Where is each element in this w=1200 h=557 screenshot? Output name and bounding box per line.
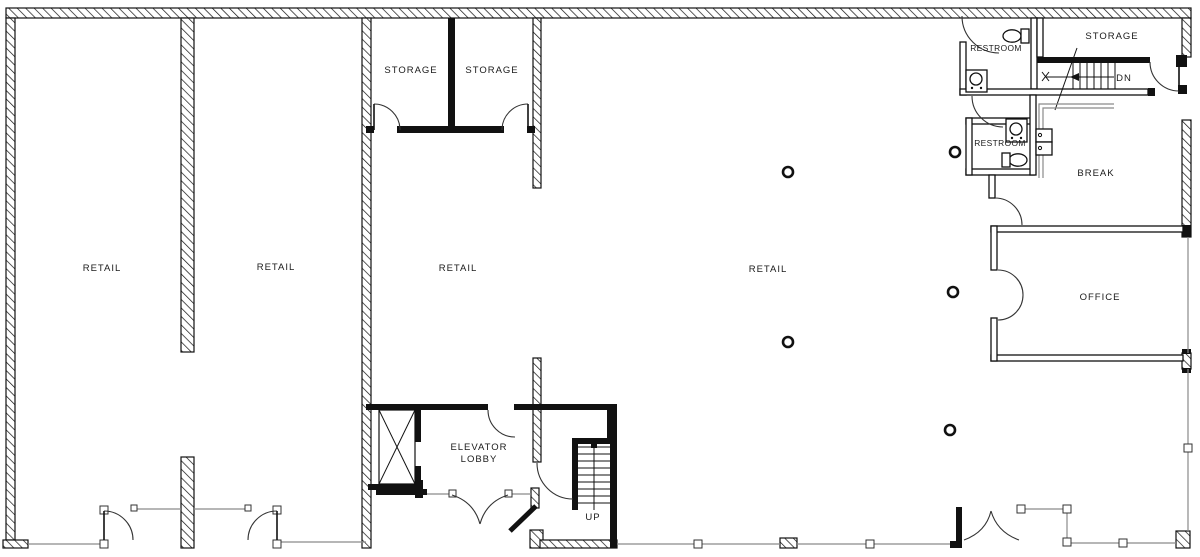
sink-icon <box>966 70 987 92</box>
stair-label-dn: DN <box>1116 73 1132 84</box>
room-label-elevator-lobby-1: ELEVATOR <box>450 442 507 453</box>
room-label-retail-1: RETAIL <box>83 263 122 274</box>
partition-walls-hatched <box>181 18 797 548</box>
elevator-shaft <box>379 410 415 484</box>
room-label-elevator-lobby-2: LOBBY <box>461 454 498 465</box>
room-label-retail-3: RETAIL <box>439 263 478 274</box>
room-label-break: BREAK <box>1077 168 1114 179</box>
room-label-storage-2: STORAGE <box>465 65 518 76</box>
column <box>783 337 793 347</box>
toilet-icon <box>1002 153 1027 167</box>
column <box>783 167 793 177</box>
column <box>945 425 955 435</box>
room-label-restroom-2: RESTROOM <box>974 138 1026 148</box>
partition-walls-double <box>960 18 1183 361</box>
column <box>948 287 958 297</box>
column <box>950 147 960 157</box>
stair-label-up: UP <box>585 512 600 523</box>
room-label-retail-2: RETAIL <box>257 262 296 273</box>
room-label-office: OFFICE <box>1080 292 1121 303</box>
columns <box>783 147 960 435</box>
toilet-icon <box>1003 29 1029 43</box>
stair-up <box>578 443 610 510</box>
room-label-storage-1: STORAGE <box>384 65 437 76</box>
solid-walls <box>366 18 1191 548</box>
kitchen-counter <box>1036 104 1114 178</box>
floor-plan-drawing: RETAIL RETAIL RETAIL RETAIL STORAGE STOR… <box>0 0 1200 557</box>
floor-plan-page: RETAIL RETAIL RETAIL RETAIL STORAGE STOR… <box>0 0 1200 557</box>
room-label-restroom-1: RESTROOM <box>970 43 1022 53</box>
room-label-retail-4: RETAIL <box>749 264 788 275</box>
room-label-storage-3: STORAGE <box>1085 31 1138 42</box>
